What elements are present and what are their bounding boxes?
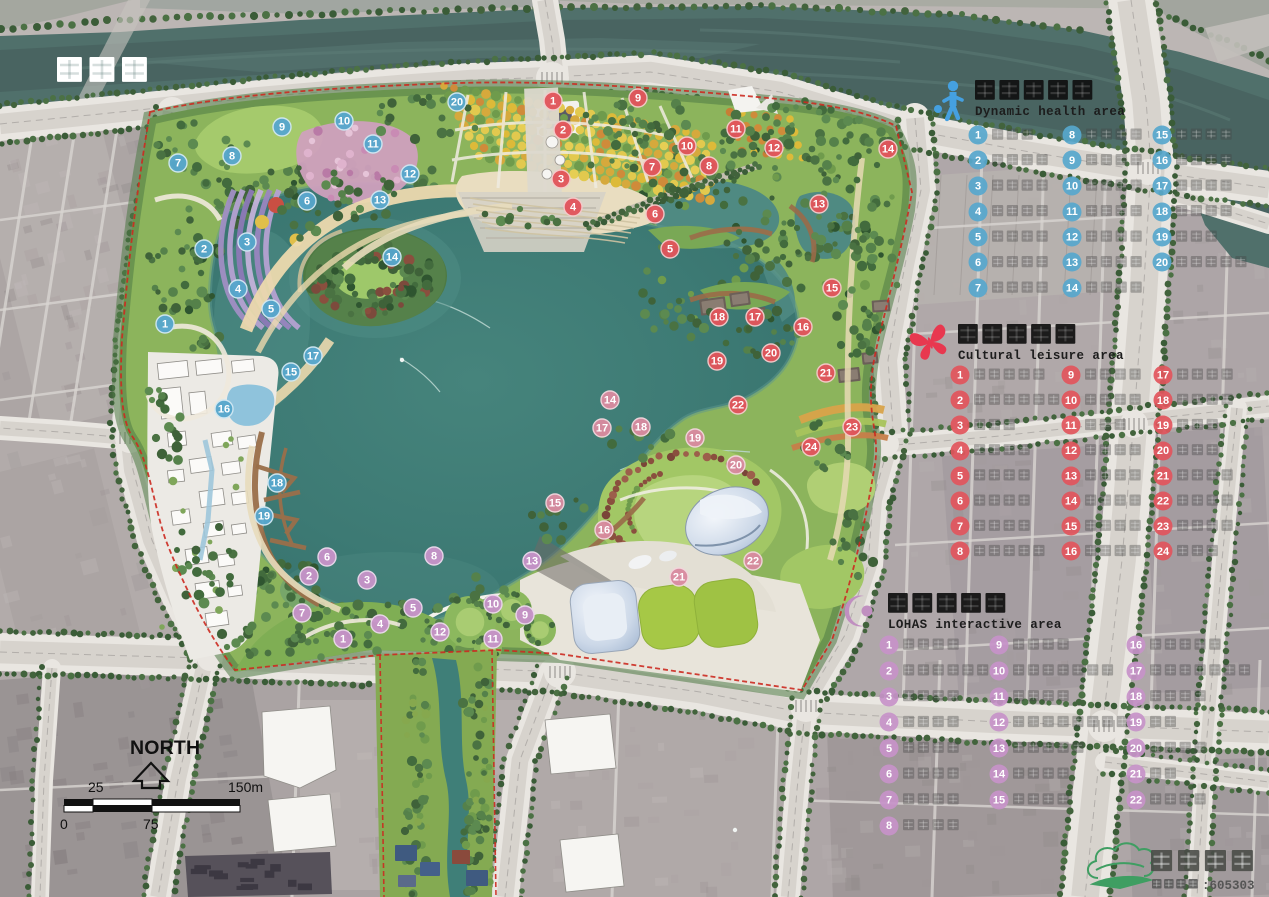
svg-text:20: 20 [730,460,742,472]
svg-text:15: 15 [549,498,561,510]
svg-text:12: 12 [404,169,416,181]
svg-text:11: 11 [1065,420,1077,432]
svg-text:10: 10 [681,141,693,153]
svg-text:17: 17 [1156,181,1168,193]
svg-text:7: 7 [649,162,655,174]
svg-text:LOHAS interactive area: LOHAS interactive area [888,618,1062,632]
svg-text:19: 19 [1157,420,1169,432]
svg-text:15: 15 [1065,521,1077,533]
svg-text:15: 15 [285,367,297,379]
svg-text:14: 14 [993,769,1006,781]
svg-text:8: 8 [886,820,892,832]
svg-text:24: 24 [1157,546,1170,558]
svg-text:Cultural leisure area: Cultural leisure area [958,349,1124,363]
svg-text:17: 17 [1130,665,1142,677]
svg-text:5: 5 [268,304,274,316]
svg-text:10: 10 [993,665,1005,677]
svg-text:3: 3 [244,237,250,249]
svg-text:21: 21 [1157,470,1169,482]
svg-text:19: 19 [711,356,723,368]
svg-text:5: 5 [957,470,963,482]
svg-text:3: 3 [558,174,564,186]
svg-text:24: 24 [805,442,818,454]
svg-text:18: 18 [271,478,283,490]
svg-text:19: 19 [689,433,701,445]
svg-text:1: 1 [957,370,963,382]
svg-text:12: 12 [434,627,446,639]
svg-text:9: 9 [996,640,1002,652]
svg-text:8: 8 [957,546,963,558]
svg-text:13: 13 [993,743,1005,755]
svg-text:3: 3 [975,181,981,193]
svg-text:12: 12 [1065,445,1077,457]
svg-text:6: 6 [324,552,330,564]
svg-text:8: 8 [706,161,712,173]
svg-text:18: 18 [635,422,647,434]
svg-text:11: 11 [487,634,499,646]
svg-text:16: 16 [797,322,809,334]
svg-text:6: 6 [975,257,981,269]
svg-text:19: 19 [258,511,270,523]
svg-text:4: 4 [570,202,577,214]
svg-text:19: 19 [1156,232,1168,244]
svg-text:15: 15 [1156,130,1168,142]
svg-text:8: 8 [1069,130,1075,142]
svg-text:6: 6 [304,196,310,208]
svg-text:21: 21 [673,572,685,584]
svg-text:23: 23 [846,422,858,434]
svg-text:2: 2 [886,665,892,677]
svg-text:20: 20 [451,97,463,109]
svg-text:12: 12 [1066,232,1078,244]
svg-text:20: 20 [765,348,777,360]
svg-text:4: 4 [886,717,893,729]
svg-text:10: 10 [1065,395,1077,407]
svg-text:7: 7 [175,158,181,170]
svg-text:9: 9 [1068,370,1074,382]
svg-text:13: 13 [374,195,386,207]
svg-text:5: 5 [975,232,981,244]
svg-text:10: 10 [338,116,350,128]
svg-text:13: 13 [1065,470,1077,482]
svg-text:17: 17 [307,351,319,363]
svg-text:4: 4 [235,284,242,296]
svg-text:1: 1 [975,130,981,142]
svg-text:11: 11 [993,691,1005,703]
svg-text:13: 13 [526,556,538,568]
svg-text:4: 4 [957,445,964,457]
svg-text:16: 16 [598,525,610,537]
svg-text:18: 18 [1130,691,1142,703]
svg-text:21: 21 [820,368,832,380]
svg-text:18: 18 [713,312,725,324]
svg-text:15: 15 [993,794,1005,806]
svg-text:2: 2 [201,244,207,256]
svg-text:6: 6 [886,769,892,781]
svg-text:14: 14 [1066,283,1079,295]
svg-text:4: 4 [975,206,982,218]
svg-text:Dynamic health area: Dynamic health area [975,105,1125,119]
svg-text:16: 16 [218,404,230,416]
svg-text:4: 4 [377,619,384,631]
svg-text:16: 16 [1130,640,1142,652]
svg-text:9: 9 [635,93,641,105]
svg-text:16: 16 [1065,546,1077,558]
svg-text:7: 7 [975,283,981,295]
svg-text:7: 7 [886,794,892,806]
svg-text:18: 18 [1156,206,1168,218]
svg-text:11: 11 [367,139,379,151]
svg-text:10: 10 [1066,181,1078,193]
svg-text:2: 2 [560,125,566,137]
svg-text:18: 18 [1157,395,1169,407]
svg-text:14: 14 [386,252,399,264]
svg-text:17: 17 [749,312,761,324]
svg-text:2: 2 [975,155,981,167]
svg-text:17: 17 [1157,370,1169,382]
svg-text:5: 5 [667,244,673,256]
svg-text:3: 3 [886,691,892,703]
svg-text:2: 2 [957,395,963,407]
svg-text:1: 1 [550,96,556,108]
svg-text:1: 1 [340,634,346,646]
svg-text:17: 17 [596,423,608,435]
svg-text:14: 14 [1065,496,1078,508]
svg-text:1: 1 [162,319,168,331]
svg-text:12: 12 [768,143,780,155]
svg-text:7: 7 [299,608,305,620]
svg-text:20: 20 [1156,257,1168,269]
svg-text:5: 5 [886,743,892,755]
svg-text:16: 16 [1156,155,1168,167]
svg-text:6: 6 [957,496,963,508]
svg-text:3: 3 [364,575,370,587]
svg-text:13: 13 [1066,257,1078,269]
svg-text:14: 14 [882,144,895,156]
svg-text:8: 8 [229,151,235,163]
svg-text:5: 5 [410,603,416,615]
svg-text:6: 6 [652,209,658,221]
svg-text:9: 9 [1069,155,1075,167]
svg-text:22: 22 [1157,496,1169,508]
svg-text:22: 22 [732,400,744,412]
svg-text:8: 8 [431,551,437,563]
svg-text:9: 9 [279,122,285,134]
svg-text:1: 1 [886,640,892,652]
svg-text:10: 10 [487,599,499,611]
svg-text:15: 15 [826,283,838,295]
svg-text:11: 11 [730,124,742,136]
svg-text:3: 3 [957,420,963,432]
svg-text:22: 22 [747,556,759,568]
svg-text:11: 11 [1066,206,1078,218]
svg-text:2: 2 [306,571,312,583]
svg-text:20: 20 [1157,445,1169,457]
svg-text:13: 13 [813,199,825,211]
svg-text:9: 9 [522,610,528,622]
svg-text:12: 12 [993,717,1005,729]
svg-text:14: 14 [604,395,617,407]
svg-text:7: 7 [957,521,963,533]
svg-text:23: 23 [1157,521,1169,533]
